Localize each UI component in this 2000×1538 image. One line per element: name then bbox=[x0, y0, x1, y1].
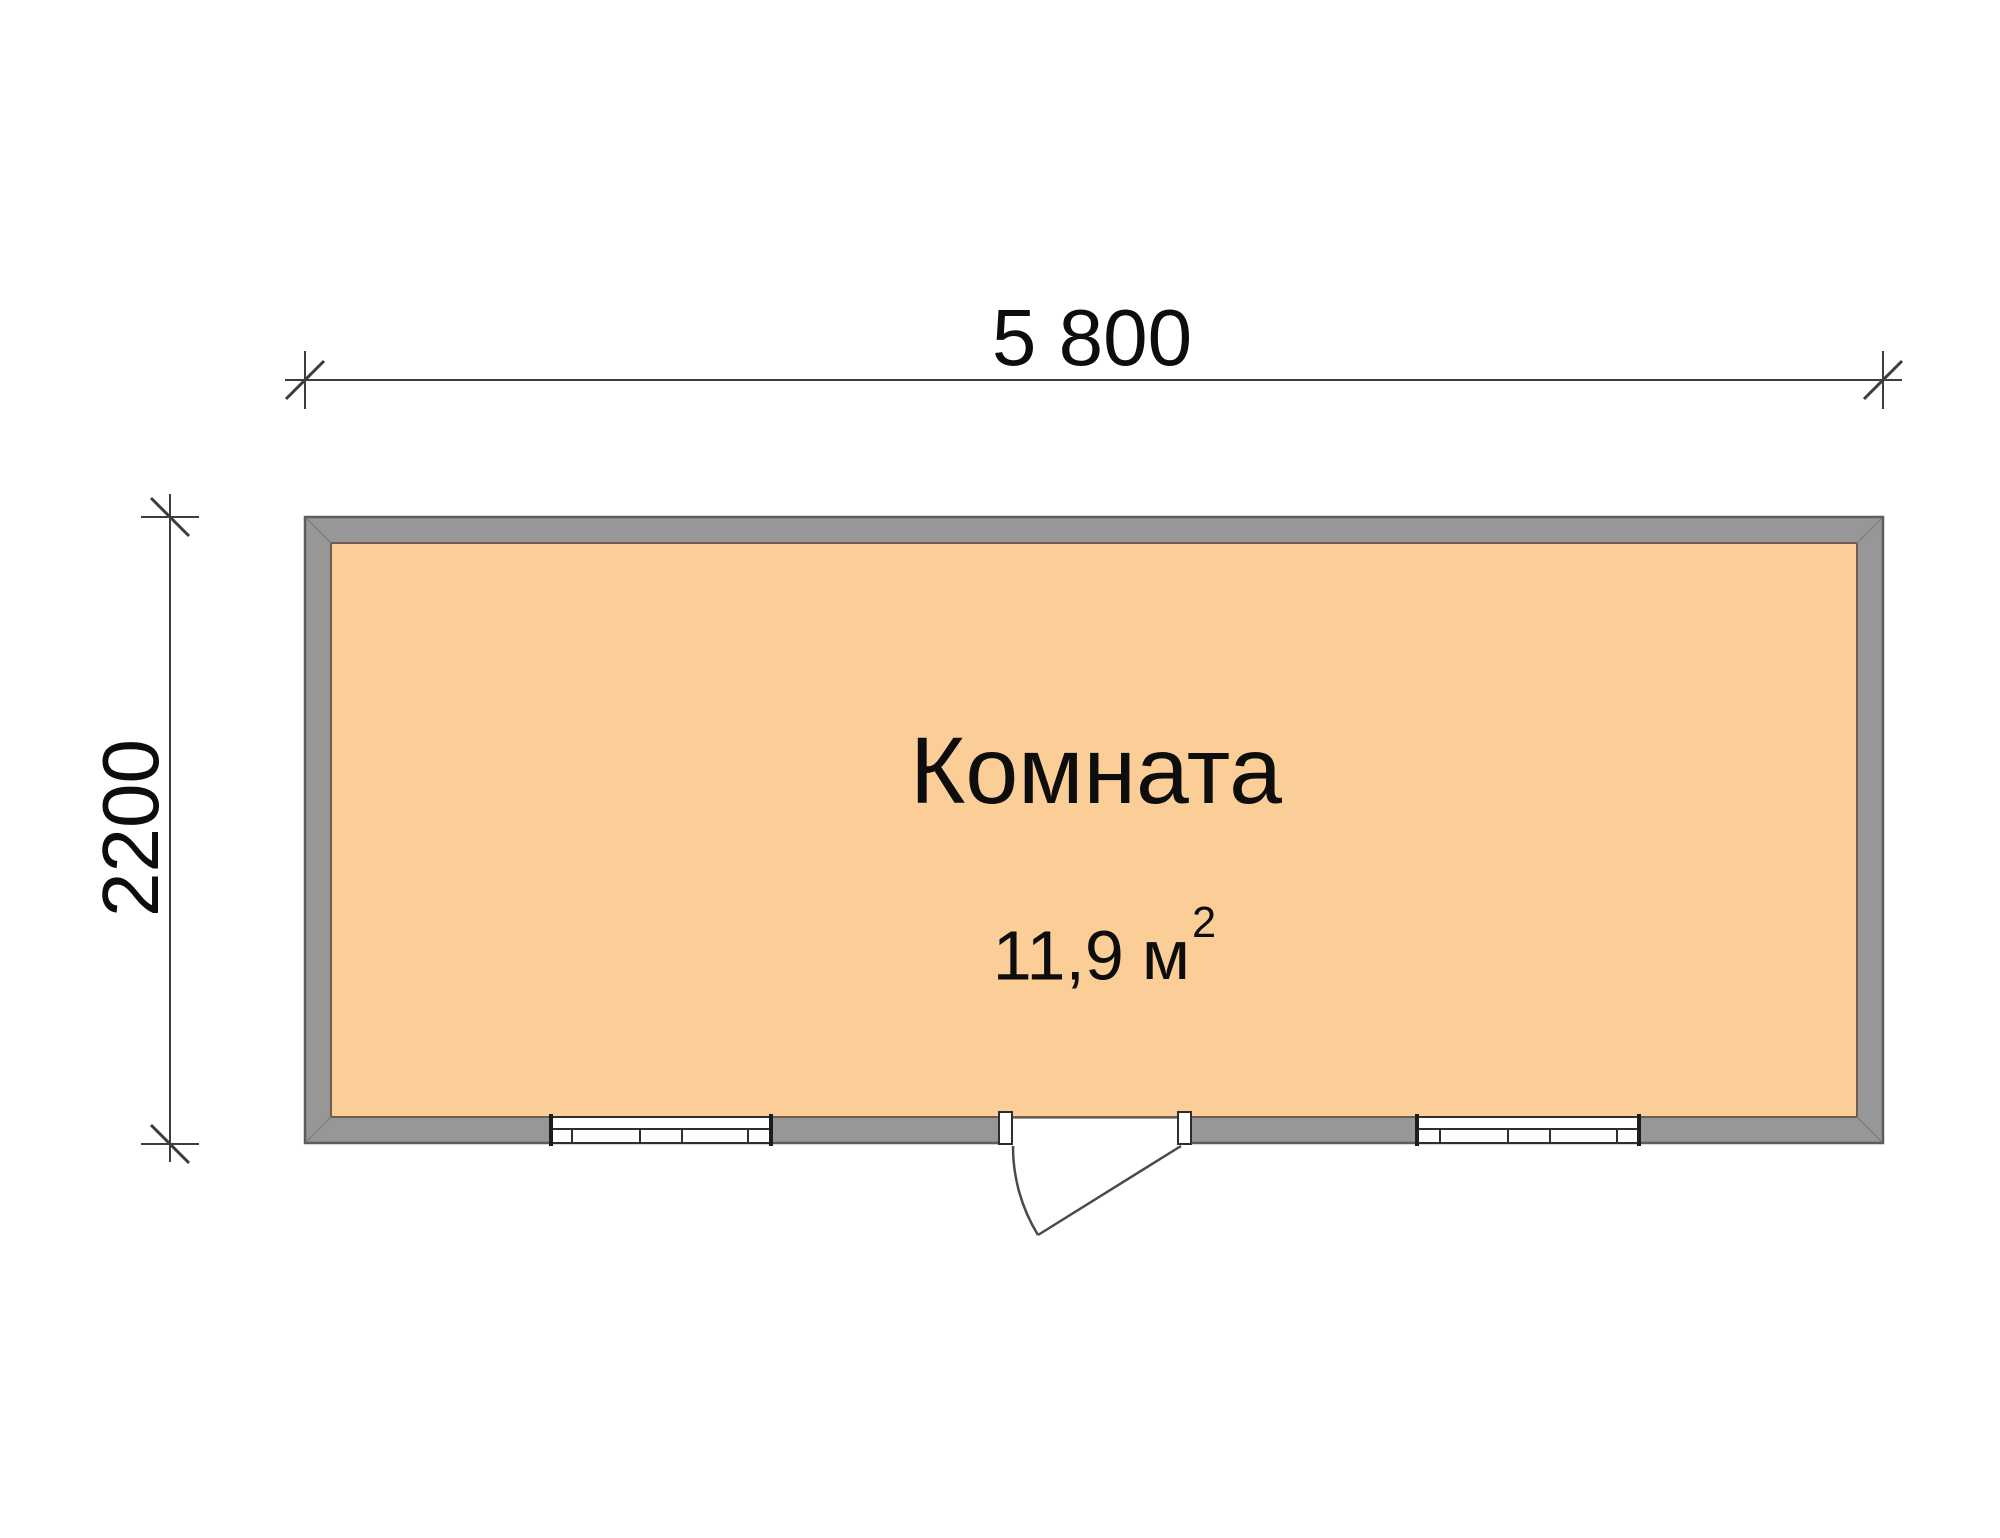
window-right bbox=[1417, 1114, 1639, 1146]
door-jamb-left bbox=[999, 1112, 1012, 1144]
dimension-width-label: 5 800 bbox=[992, 298, 1192, 378]
window-left bbox=[551, 1114, 771, 1146]
room-area-unit: м bbox=[1142, 916, 1190, 994]
door-leaf bbox=[1038, 1146, 1181, 1235]
door-opening-gap bbox=[1012, 1119, 1178, 1147]
room-area-label: 11,9м2 bbox=[915, 850, 1216, 1060]
dimension-height-label: 2200 bbox=[91, 739, 171, 917]
room-name-label: Комната bbox=[910, 724, 1282, 819]
door-jamb-right bbox=[1178, 1112, 1191, 1144]
room-area-exponent: 2 bbox=[1192, 899, 1216, 947]
floor-plan-canvas: 5 800 2200 Комната 11,9м2 bbox=[0, 0, 2000, 1538]
room-area-value: 11,9 bbox=[993, 916, 1124, 994]
door-swing-arc bbox=[1013, 1146, 1038, 1235]
